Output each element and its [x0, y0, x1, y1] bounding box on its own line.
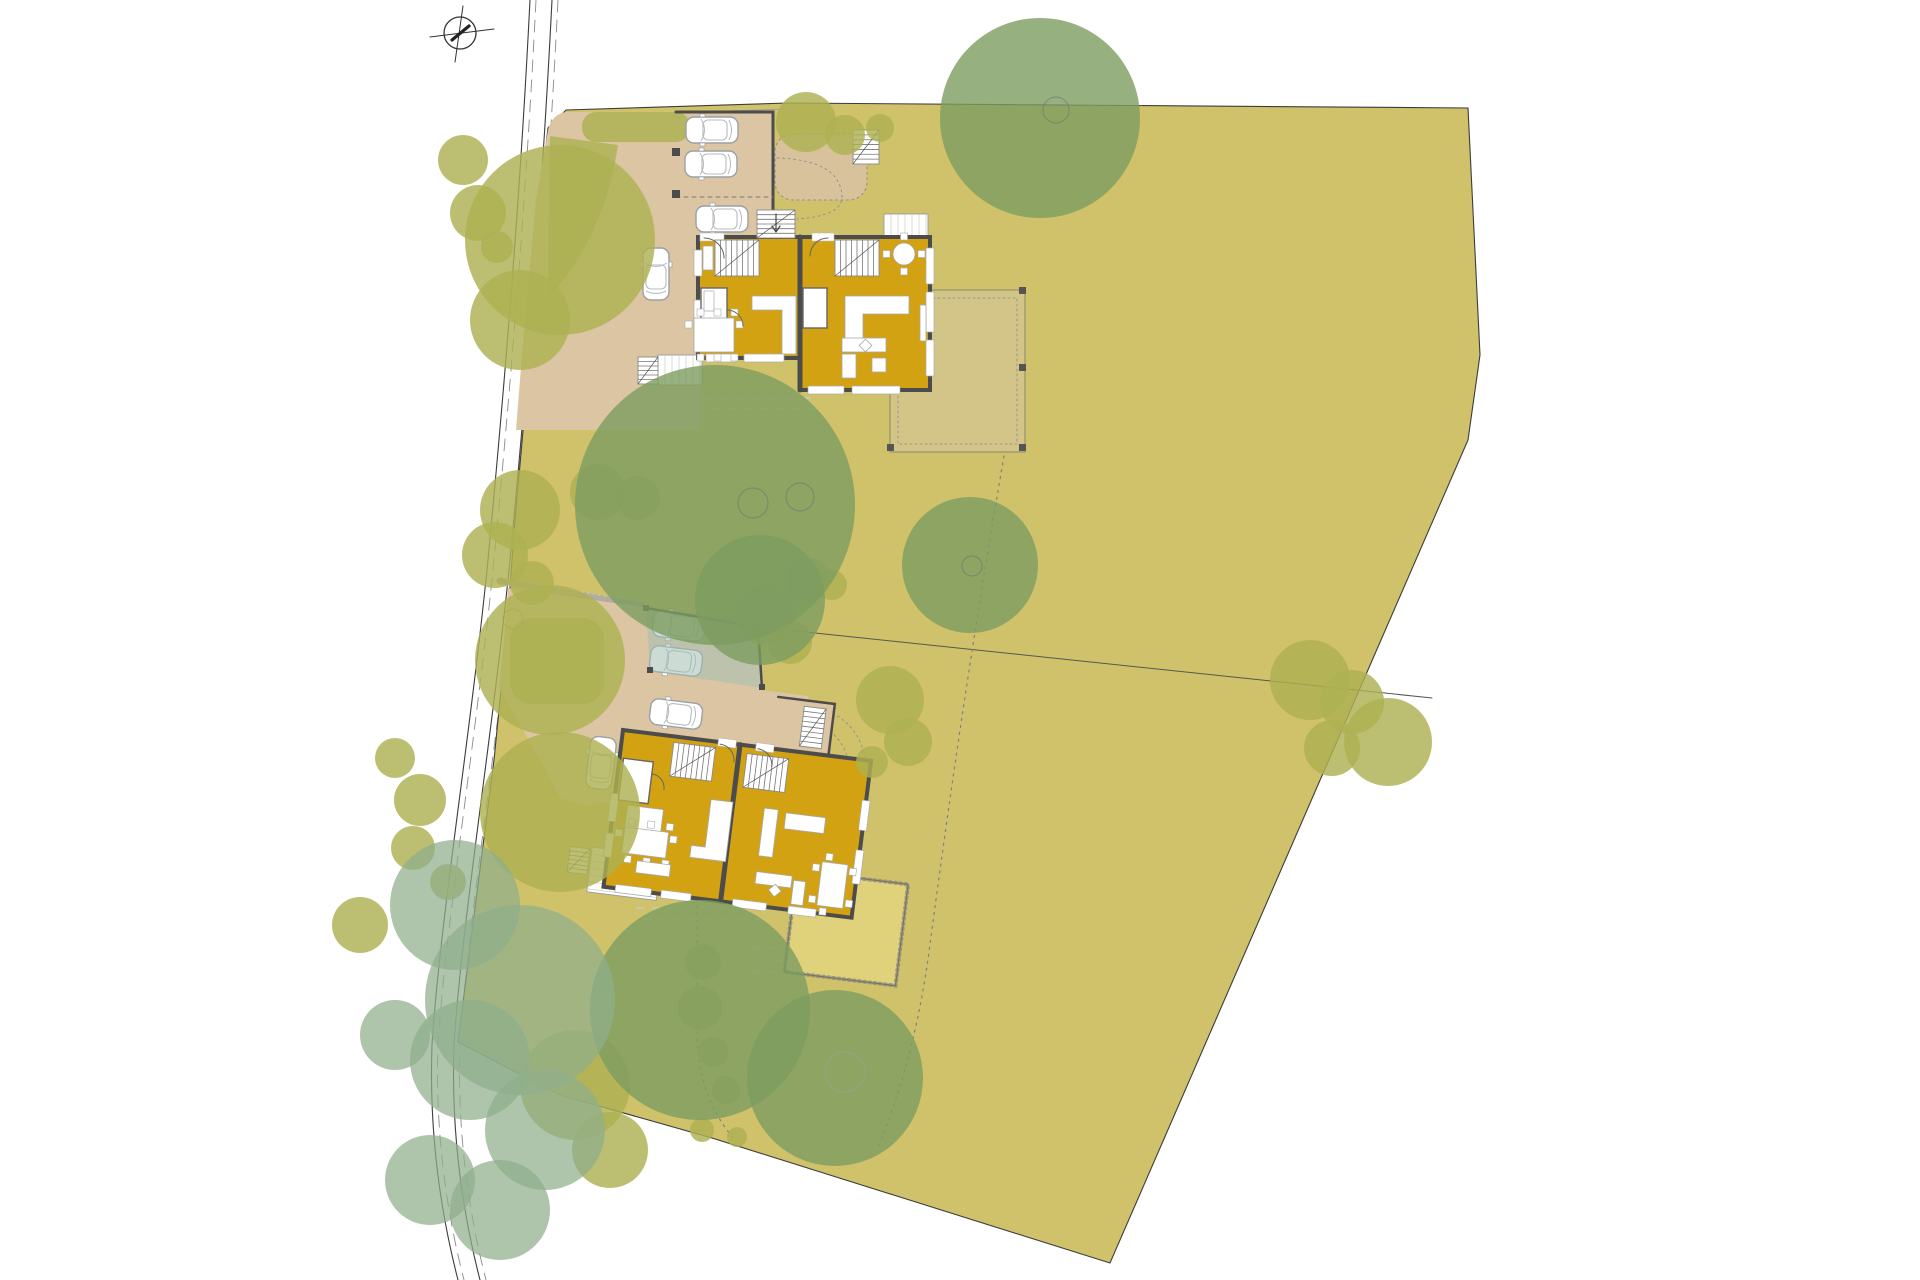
chair: [697, 354, 704, 361]
tree: [360, 1000, 430, 1070]
parked-car: [685, 148, 737, 180]
storage-room: [803, 288, 827, 328]
chair: [825, 853, 833, 861]
tree: [390, 840, 520, 970]
chair: [685, 321, 692, 328]
tree: [747, 990, 923, 1166]
window: [694, 250, 702, 276]
chair: [647, 821, 655, 829]
site-plan-page: [0, 0, 1920, 1280]
window: [926, 292, 934, 332]
sideboard: [920, 305, 926, 341]
chair: [883, 251, 890, 258]
chair: [714, 309, 721, 316]
interior-stair: [743, 754, 789, 793]
cabinet: [703, 246, 713, 270]
carport-post: [647, 667, 653, 673]
garage-column: [672, 148, 680, 156]
armchair: [872, 358, 886, 372]
tree: [394, 774, 446, 826]
window: [926, 340, 934, 376]
tree: [902, 497, 1038, 633]
sofa: [791, 880, 806, 905]
interior-stair: [715, 240, 759, 276]
tree: [825, 115, 865, 155]
survey-marker-tick: [452, 26, 469, 40]
chair: [731, 309, 738, 316]
chair: [819, 908, 827, 916]
vestibule-stair: [799, 706, 826, 748]
tree: [450, 1160, 550, 1260]
sofa: [842, 354, 856, 378]
pergola-post: [887, 444, 894, 451]
window: [808, 386, 844, 394]
chair: [736, 321, 743, 328]
tree: [727, 1127, 747, 1147]
tree: [475, 585, 625, 735]
tree: [884, 718, 932, 766]
chair: [901, 233, 908, 240]
tree: [690, 1118, 714, 1142]
pergola-post: [1019, 444, 1026, 451]
chair: [731, 354, 738, 361]
interior-stair: [835, 240, 879, 276]
tree: [438, 135, 488, 185]
hedge-strip: [582, 112, 690, 142]
garage-column: [672, 190, 680, 198]
chair: [812, 864, 820, 872]
parked-car: [696, 203, 748, 235]
chair: [697, 309, 704, 316]
chair: [669, 836, 677, 844]
chair: [918, 251, 925, 258]
chair: [666, 823, 674, 831]
chair: [714, 354, 721, 361]
survey-marker: [430, 6, 494, 62]
carport-post: [759, 684, 765, 690]
pergola-post: [1019, 287, 1026, 294]
chair: [849, 868, 857, 876]
pergola-post: [1019, 364, 1026, 371]
tree: [866, 114, 894, 142]
tree: [1304, 720, 1360, 776]
window: [852, 386, 900, 394]
chair: [845, 900, 853, 908]
chair: [808, 895, 816, 903]
tree: [470, 270, 570, 370]
tree: [695, 535, 825, 665]
window: [926, 248, 934, 284]
parked-car: [686, 114, 738, 146]
door-opening: [812, 233, 834, 241]
tree: [375, 738, 415, 778]
tree: [856, 746, 888, 778]
interior-stair: [670, 742, 716, 781]
site-plan-drawing: [0, 0, 1920, 1280]
chair: [901, 268, 908, 275]
window: [744, 354, 784, 362]
tree: [332, 897, 388, 953]
bath-fixture: [704, 291, 714, 311]
tree: [940, 18, 1140, 218]
